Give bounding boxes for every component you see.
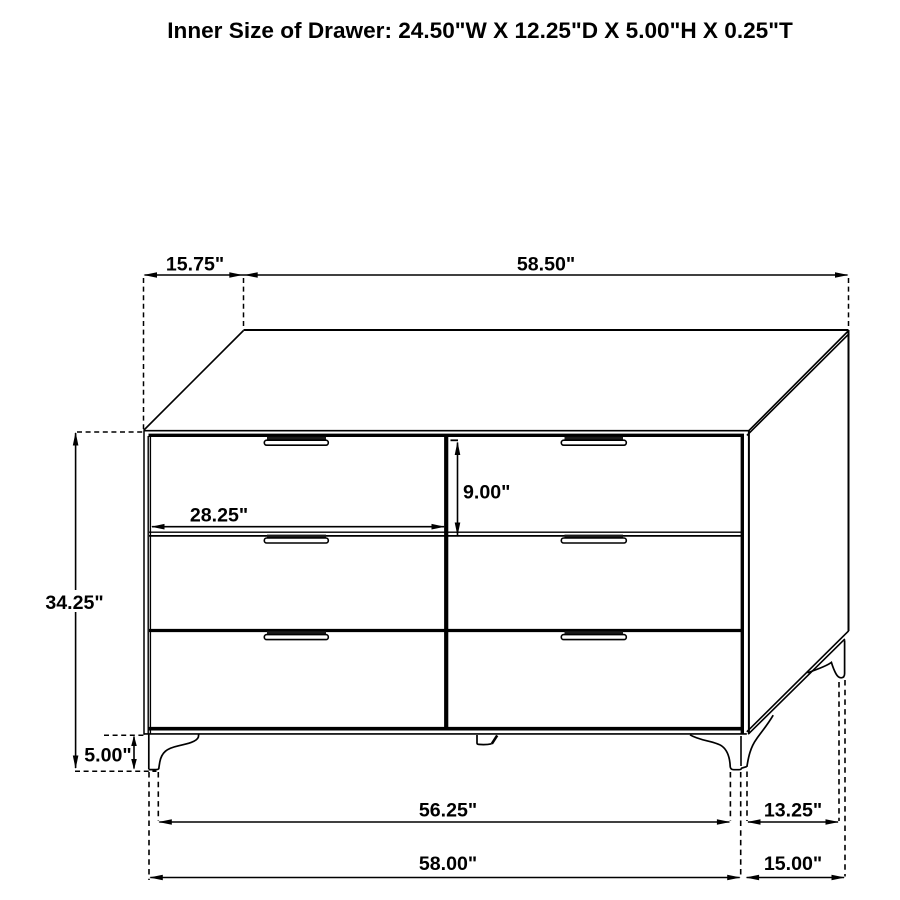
svg-text:5.00": 5.00"	[84, 745, 131, 767]
svg-text:28.25": 28.25"	[190, 505, 248, 527]
svg-text:15.75": 15.75"	[166, 254, 224, 276]
svg-text:58.00": 58.00"	[419, 853, 477, 875]
svg-text:Inner Size of Drawer: 24.50"W: Inner Size of Drawer: 24.50"W X 12.25"D …	[167, 18, 793, 43]
svg-text:56.25": 56.25"	[419, 800, 477, 822]
svg-text:15.00": 15.00"	[764, 853, 822, 875]
svg-text:34.25": 34.25"	[45, 592, 103, 614]
svg-text:58.50": 58.50"	[517, 253, 575, 275]
svg-text:9.00": 9.00"	[463, 482, 510, 504]
svg-text:13.25": 13.25"	[764, 800, 822, 822]
